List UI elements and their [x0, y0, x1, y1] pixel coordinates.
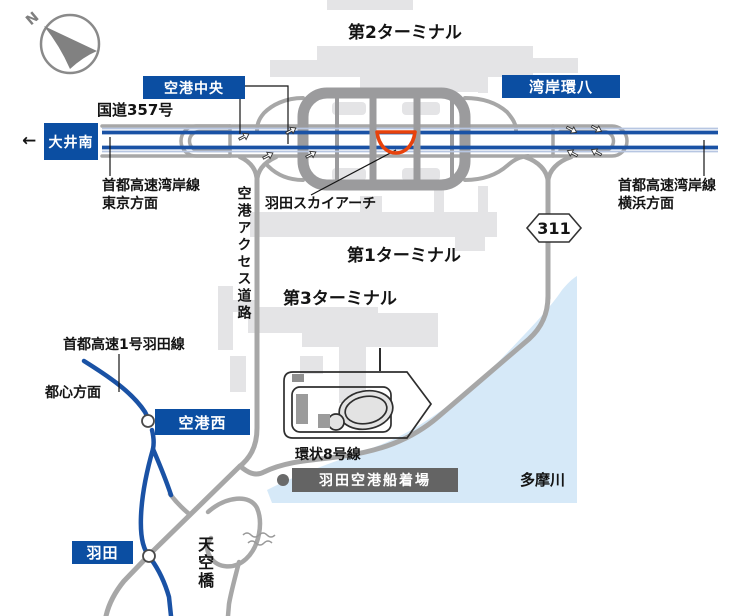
badge-kuko-nishi: 空港西 [155, 409, 250, 435]
compass-icon [41, 15, 99, 73]
west-arrow-icon: ← [22, 130, 36, 152]
label-haneda-line: 首都高速1号羽田線 [63, 336, 185, 354]
label-route357: 国道357号 [97, 101, 173, 121]
label-toshin: 都心方面 [45, 384, 101, 402]
badge-kuko-chuo: 空港中央 [143, 76, 245, 99]
badge-oi-minami: 大井南 [44, 123, 98, 160]
badge-funatsukiba: 羽田空港船着場 [292, 468, 458, 492]
label-wangan-yokohama-dir: 横浜方面 [618, 195, 716, 213]
label-sky-arch: 羽田スカイアーチ [265, 195, 376, 213]
label-wangan-tokyo-line: 首都高速湾岸線 [102, 177, 200, 195]
terminal-loop-road [303, 93, 465, 185]
label-access-road: 空港アクセス道路 [234, 186, 252, 322]
label-terminal3: 第3ターミナル [283, 288, 397, 310]
haneda-airport-access-map: N ← 大井南 空港中央 湾岸環八 空港西 羽田 羽田空港船着場 311 第2タ… [0, 0, 750, 616]
route-311-number: 311 [527, 218, 581, 239]
badge-haneda: 羽田 [72, 541, 133, 564]
label-wangan-tokyo: 首都高速湾岸線 東京方面 [102, 177, 200, 214]
label-tamagawa: 多摩川 [520, 471, 565, 491]
label-wangan-tokyo-dir: 東京方面 [102, 195, 200, 213]
dock-dot [277, 474, 289, 486]
label-wangan-yokohama: 首都高速湾岸線 横浜方面 [618, 177, 716, 214]
badge-wangan-kanpachi: 湾岸環八 [502, 75, 620, 98]
label-terminal2: 第2ターミナル [348, 22, 462, 44]
sky-arch-highlight [377, 132, 415, 153]
label-kanjo8: 環状8号線 [295, 446, 361, 464]
label-tenkubashi: 天空橋 [194, 536, 215, 590]
label-wangan-yokohama-line: 首都高速湾岸線 [618, 177, 716, 195]
label-terminal1: 第1ターミナル [347, 245, 461, 267]
